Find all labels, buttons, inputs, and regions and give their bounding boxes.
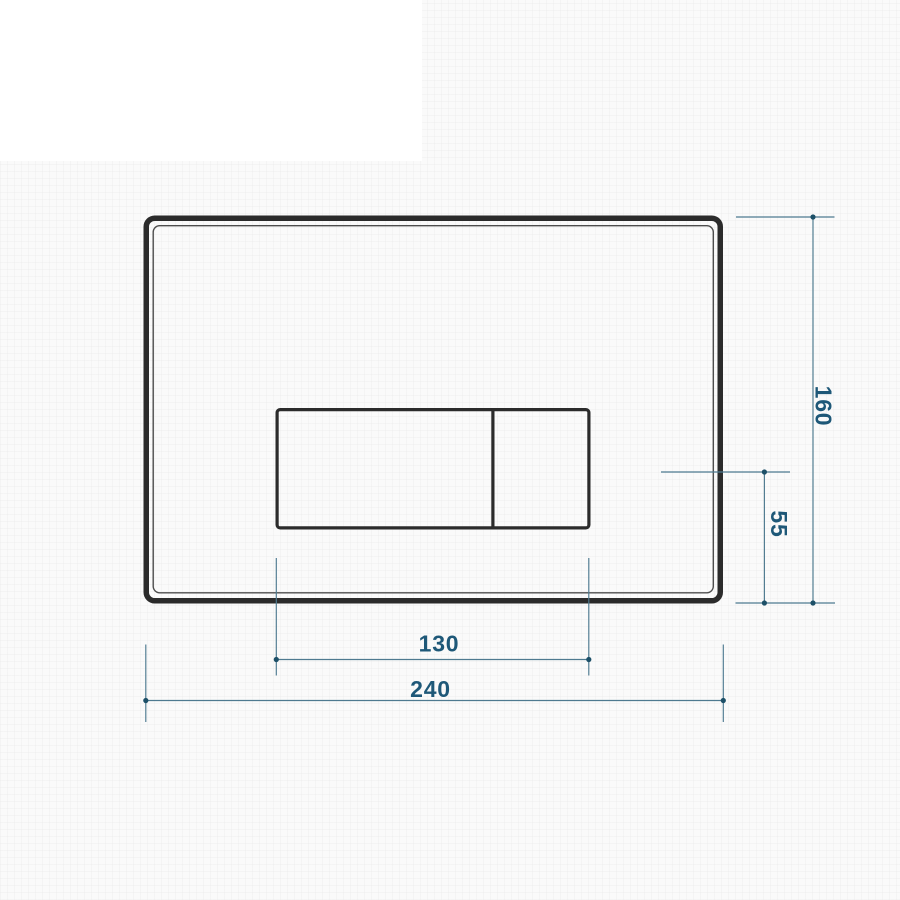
svg-text:240: 240: [410, 676, 451, 702]
svg-text:160: 160: [811, 386, 837, 427]
svg-text:130: 130: [419, 631, 460, 657]
svg-text:55: 55: [766, 510, 792, 537]
